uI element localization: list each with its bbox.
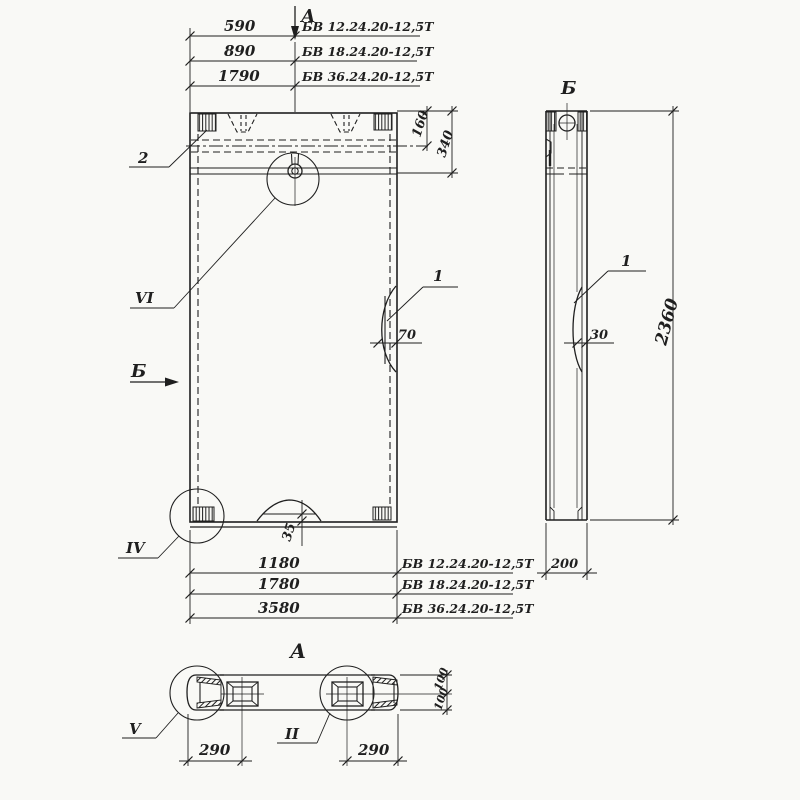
dim-35: 35 [280,521,300,543]
callout-2: 2 [137,149,148,167]
dim-1790: 1790 [218,67,260,85]
top-inset-dims: 160 340 [397,106,458,178]
mark-bv18-bottom: БВ 18.24.20-12,5Т [401,577,535,592]
edge-dims: 100 100 [400,666,452,715]
mark-bv12-top: БВ 12.24.20-12,5Т [301,19,435,34]
bottom-dimension-block: 1180 1780 3580 БВ 12.24.20-12,5Т БВ 18.2… [186,530,536,624]
hump-dim: 35 [280,500,307,546]
callout-vi: VI [135,289,155,307]
lifting-block-bottom-left [193,507,214,521]
grip-recess-front [382,286,396,372]
mark-bv18-top: БВ 18.24.20-12,5Т [301,44,435,59]
lifting-eye [288,154,302,206]
side-foot-right [578,507,582,520]
dim-590: 590 [224,17,256,35]
front-recess-dim: 70 1 [370,267,458,348]
loop-pocket-right [331,114,360,132]
callout-1-side: 1 [621,252,631,270]
dim-340: 340 [435,129,458,159]
detail-circle-v [170,666,224,720]
callout-iv: IV [125,539,146,557]
dim-200: 200 [550,557,578,572]
front-view [170,113,428,543]
dim-1780: 1780 [258,575,300,593]
dim-160: 160 [410,109,433,139]
side-view: Б [546,78,587,520]
dovetail-end-right [371,675,398,710]
drawing-sheet: А 590 890 1790 БВ 12.24.20-12,5Т БВ 18.2… [0,0,800,800]
mark-bv36-top: БВ 36.24.20-12,5Т [301,69,435,84]
side-foot-left [550,507,554,520]
lifting-block-bottom-right [373,507,391,520]
dim-30: 30 [590,328,608,343]
dim-2360: 2360 [651,296,683,348]
callout-v: V [129,720,142,738]
dim-3580: 3580 [258,599,300,617]
detail-circle-vi [267,153,319,205]
dim-70: 70 [398,328,416,343]
side-block-right [578,112,587,131]
side-block-left [546,112,556,131]
mark-bv36-bottom: БВ 36.24.20-12,5Т [401,601,535,616]
bottom-hump [257,500,321,521]
callout-ii: II [284,725,300,743]
dim-290-left: 290 [198,741,231,759]
callout-1-front: 1 [433,267,443,285]
front-callouts: 2 VI IV Б [118,130,275,558]
dim-1180: 1180 [258,554,300,572]
mark-bv12-bottom: БВ 12.24.20-12,5Т [401,556,535,571]
dovetail-end-left [187,675,224,710]
section-a-title: А [288,639,306,663]
top-dimension-block: А 590 890 1790 БВ 12.24.20-12,5Т БВ 18.2… [186,6,436,112]
thickness-dim: 200 [537,523,597,580]
height-dim: 2360 [590,106,683,525]
side-view-title: Б [560,78,576,99]
section-cut-label-b: Б [130,361,146,382]
dim-890: 890 [224,42,256,60]
lifting-block-top-left [198,114,216,131]
section-a-view: А [122,639,452,766]
lifting-block-top-right [374,114,392,130]
section-cut-arrow-b [165,378,179,387]
loop-pocket-left [228,114,257,132]
dim-290-right: 290 [357,741,390,759]
